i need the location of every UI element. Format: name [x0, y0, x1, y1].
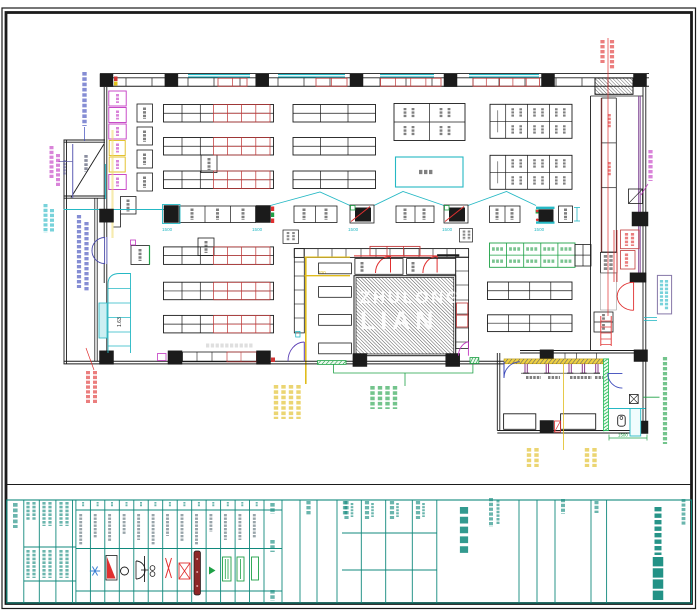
svg-text:ZHULONG: ZHULONG [360, 288, 462, 307]
svg-text:700: 700 [318, 270, 326, 275]
svg-text:1500: 1500 [252, 227, 263, 232]
svg-text:1500: 1500 [618, 433, 628, 438]
svg-text:LIAN: LIAN [360, 307, 438, 335]
svg-text:1500: 1500 [348, 227, 359, 232]
svg-text:1500: 1500 [534, 227, 545, 232]
svg-text:1500: 1500 [162, 227, 173, 232]
svg-text:1.63: 1.63 [117, 317, 123, 327]
svg-text:1500: 1500 [442, 227, 453, 232]
